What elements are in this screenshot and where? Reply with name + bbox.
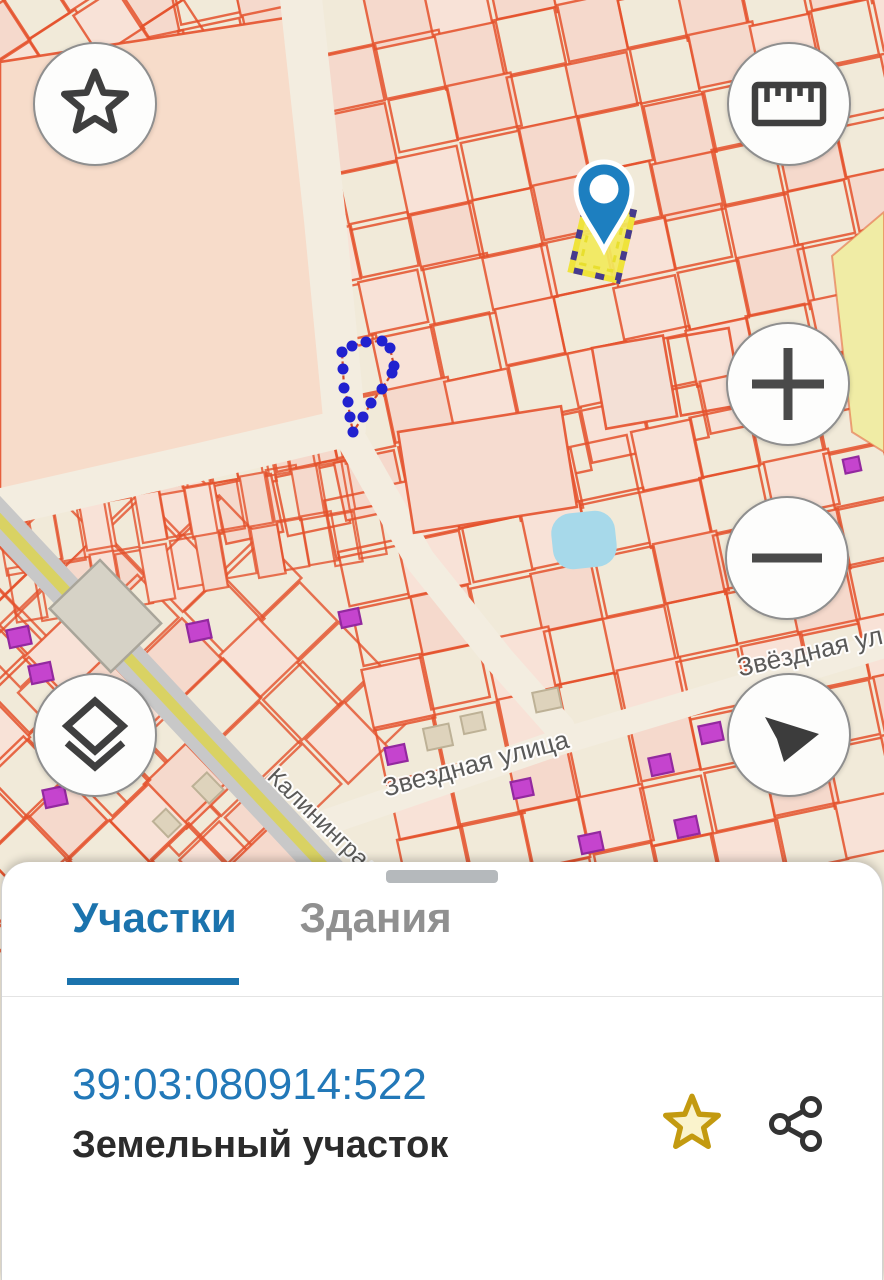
zoom-in-button[interactable] xyxy=(726,322,850,446)
compass-button[interactable] xyxy=(727,673,851,797)
parcel-actions xyxy=(658,1090,826,1161)
navigation-arrow-icon xyxy=(749,695,829,775)
tab-divider xyxy=(2,996,882,997)
parcel-type-label: Земельный участок xyxy=(72,1124,448,1167)
sheet-drag-handle[interactable] xyxy=(386,870,498,883)
star-icon xyxy=(658,1090,726,1158)
parcel-info: 39:03:080914:522 Земельный участок xyxy=(72,1060,448,1167)
measure-button[interactable] xyxy=(727,42,851,166)
tab-bar: Участки Здания xyxy=(72,894,452,942)
plus-icon xyxy=(748,344,828,424)
cadastral-number-link[interactable]: 39:03:080914:522 xyxy=(72,1060,448,1110)
active-tab-underline xyxy=(67,978,239,985)
tab-parcels[interactable]: Участки xyxy=(72,894,237,942)
minus-icon xyxy=(747,518,827,598)
tab-buildings[interactable]: Здания xyxy=(300,894,452,942)
zoom-out-button[interactable] xyxy=(725,496,849,620)
app-screen: Звездная улица Звёздная ул Калининградск… xyxy=(0,0,884,1280)
share-button[interactable] xyxy=(766,1094,826,1157)
favorite-parcel-button[interactable] xyxy=(658,1090,726,1161)
layers-button[interactable] xyxy=(33,673,157,797)
star-icon xyxy=(57,66,133,142)
layers-icon xyxy=(55,693,135,777)
pond xyxy=(549,509,619,571)
favorites-button[interactable] xyxy=(33,42,157,166)
ruler-icon xyxy=(747,74,831,134)
bottom-sheet: Участки Здания 39:03:080914:522 Земельны… xyxy=(1,862,883,1280)
share-icon xyxy=(766,1094,826,1154)
